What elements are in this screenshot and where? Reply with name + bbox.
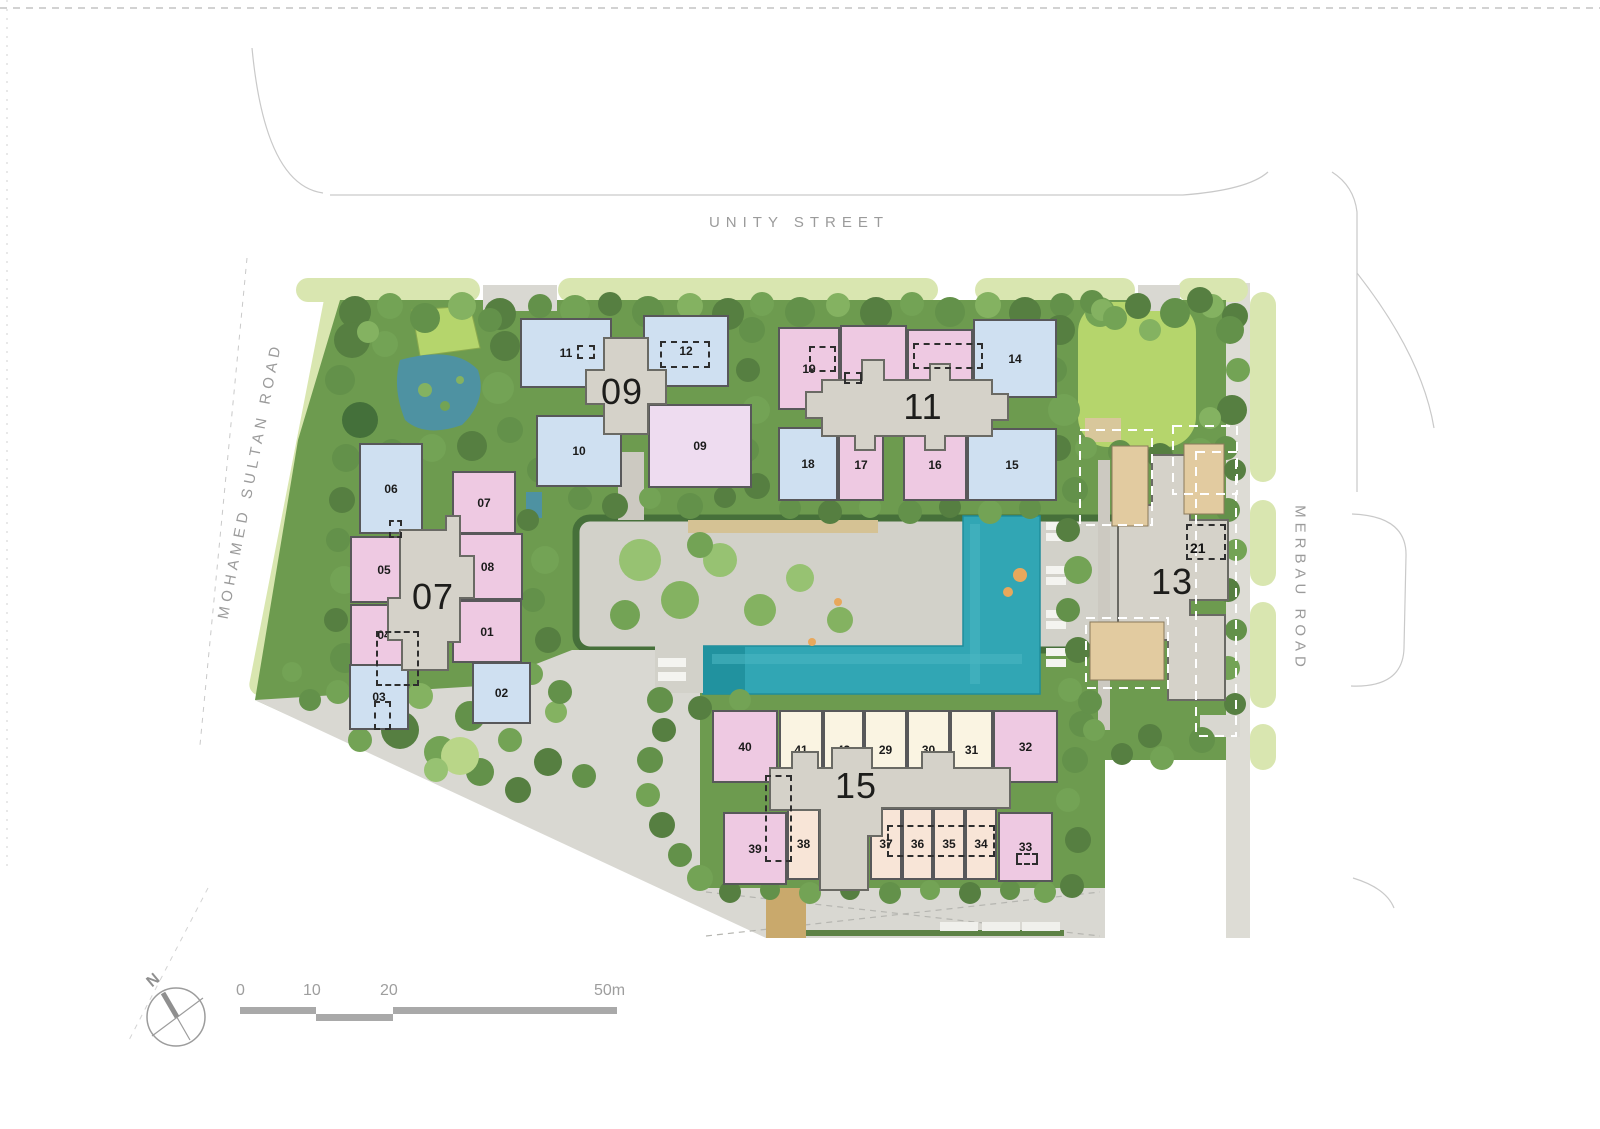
compass-north-label: N bbox=[144, 970, 164, 991]
street-label-merbau: MERBAU ROAD bbox=[1292, 499, 1309, 679]
site-plan: 11 12 10 09 19 20 13 14 18 17 16 15 06 0… bbox=[0, 0, 1600, 1129]
dashed-outline bbox=[844, 372, 862, 384]
dashed-outline bbox=[376, 631, 419, 686]
dashed-outline bbox=[913, 343, 983, 369]
scale-bar-segment bbox=[393, 1007, 617, 1014]
scale-tick-0: 0 bbox=[236, 982, 245, 1000]
dashed-outline bbox=[809, 346, 836, 372]
building-09-label: 09 bbox=[582, 371, 662, 413]
street-label-unity: UNITY STREET bbox=[659, 214, 939, 231]
scale-tick-20: 20 bbox=[380, 982, 398, 1000]
dashed-outline bbox=[887, 825, 995, 857]
scale-bar-segment bbox=[240, 1007, 316, 1014]
dashed-outline bbox=[1016, 853, 1038, 865]
dashed-outline bbox=[660, 341, 710, 368]
building-11-label: 11 bbox=[883, 386, 963, 428]
dashed-outline bbox=[389, 520, 402, 538]
labels-layer: 09 11 07 15 13 21 UNITY STREET MOHAMED S… bbox=[0, 0, 1600, 1129]
building-07-label: 07 bbox=[393, 576, 473, 618]
dashed-outline bbox=[374, 701, 391, 730]
dashed-outline bbox=[1186, 524, 1226, 560]
building-15-label: 15 bbox=[816, 765, 896, 807]
unit-21[interactable]: 21 bbox=[1190, 540, 1206, 556]
scale-tick-10: 10 bbox=[303, 982, 321, 1000]
dashed-outline bbox=[577, 345, 595, 359]
dashed-outline bbox=[765, 775, 792, 862]
scale-bar-segment bbox=[316, 1014, 393, 1021]
scale-tick-50: 50m bbox=[594, 982, 625, 1000]
street-label-mohamed-sultan: MOHAMED SULTAN ROAD bbox=[209, 312, 291, 649]
building-13-label: 13 bbox=[1132, 561, 1212, 603]
